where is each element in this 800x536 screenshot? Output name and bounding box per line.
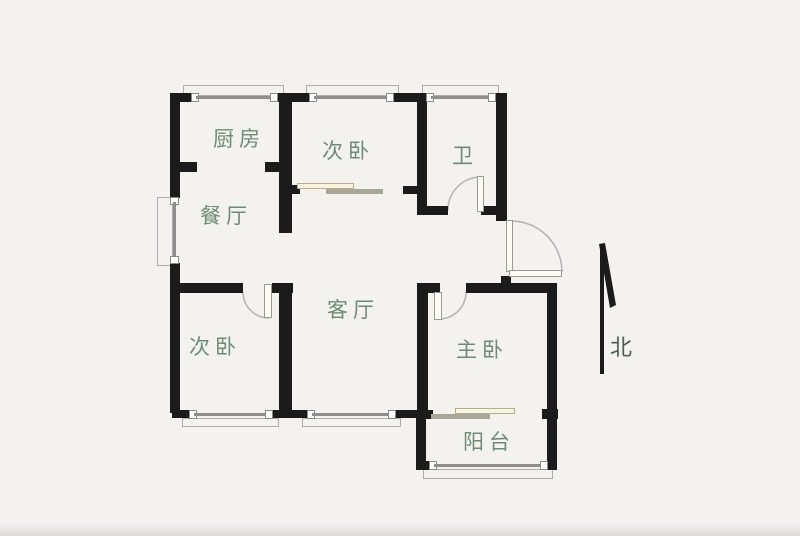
room-label-master: 主卧 (456, 334, 508, 364)
room-label-kitchen: 厨房 (213, 123, 265, 153)
floor-plan-canvas: 厨房 餐厅 次卧 卫 次卧 客厅 主卧 阳台 北 (0, 0, 800, 536)
wall-segment (170, 93, 180, 198)
wall-segment (417, 93, 427, 215)
window (189, 410, 273, 418)
wall-segment (279, 93, 292, 233)
door-leaf (509, 270, 562, 277)
wall-segment (496, 93, 507, 221)
door-arcs-and-compass (0, 0, 800, 536)
window (307, 410, 396, 418)
door-leaf (434, 292, 442, 320)
door-swing-arc (511, 221, 562, 272)
room-label-bathroom: 卫 (452, 140, 478, 170)
wall-segment (403, 186, 418, 194)
room-label-bedroom-north: 次卧 (322, 135, 374, 165)
wall-segment (279, 283, 292, 416)
wall-segment (172, 162, 197, 172)
door-leaf (477, 176, 484, 212)
north-label: 北 (610, 330, 632, 362)
room-label-balcony: 阳台 (463, 426, 515, 456)
wall-segment (172, 410, 190, 418)
wall-segment (466, 283, 557, 293)
room-label-bedroom-west: 次卧 (189, 331, 241, 361)
window (426, 93, 496, 102)
door-swing-arc (439, 292, 466, 319)
wall-segment (547, 283, 557, 469)
window (429, 461, 548, 470)
wall-segment (417, 283, 428, 414)
door-leaf (264, 284, 272, 318)
room-label-dining: 餐厅 (200, 200, 252, 230)
wall-segment (417, 206, 448, 215)
window (191, 93, 278, 102)
wall-segment (272, 410, 308, 418)
room-label-living: 客厅 (327, 294, 379, 324)
sliding-door-panel (431, 414, 490, 419)
door-jamb (506, 220, 513, 272)
wall-segment (172, 283, 243, 293)
sliding-door-panel (326, 189, 383, 194)
window (309, 93, 394, 102)
window (170, 197, 180, 264)
